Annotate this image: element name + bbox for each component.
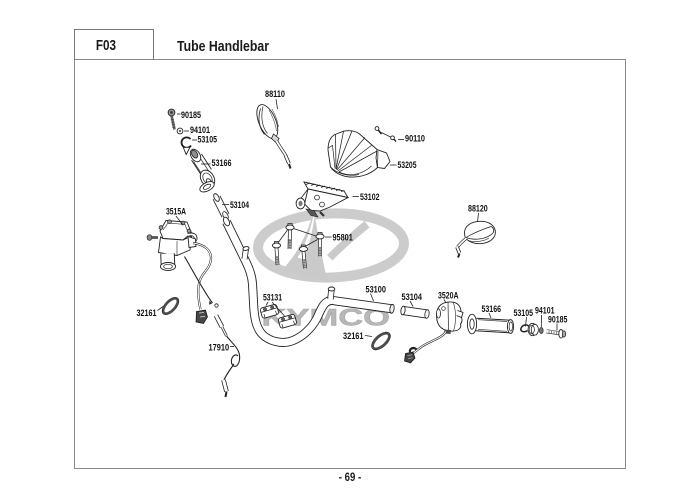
svg-text:53102: 53102 <box>360 192 380 202</box>
svg-text:53105: 53105 <box>514 308 534 318</box>
svg-text:53105: 53105 <box>198 135 218 145</box>
svg-text:90110: 90110 <box>405 134 425 144</box>
svg-text:3520A: 3520A <box>438 291 459 301</box>
svg-text:53104: 53104 <box>402 292 423 302</box>
svg-text:90185: 90185 <box>181 110 201 120</box>
svg-text:94101: 94101 <box>190 125 210 135</box>
svg-text:53104: 53104 <box>230 200 250 210</box>
svg-text:32161: 32161 <box>137 308 157 318</box>
svg-text:53205: 53205 <box>398 160 417 170</box>
svg-text:53166: 53166 <box>212 158 232 168</box>
svg-text:95801: 95801 <box>333 233 353 243</box>
svg-text:3515A: 3515A <box>166 207 186 217</box>
svg-text:53100: 53100 <box>366 285 386 295</box>
svg-text:88120: 88120 <box>468 204 488 214</box>
svg-text:90185: 90185 <box>548 315 567 325</box>
svg-text:53166: 53166 <box>482 304 502 314</box>
svg-text:17910: 17910 <box>209 343 230 353</box>
svg-text:88110: 88110 <box>265 89 285 99</box>
svg-text:53131: 53131 <box>263 293 282 303</box>
svg-text:32161: 32161 <box>343 331 364 341</box>
